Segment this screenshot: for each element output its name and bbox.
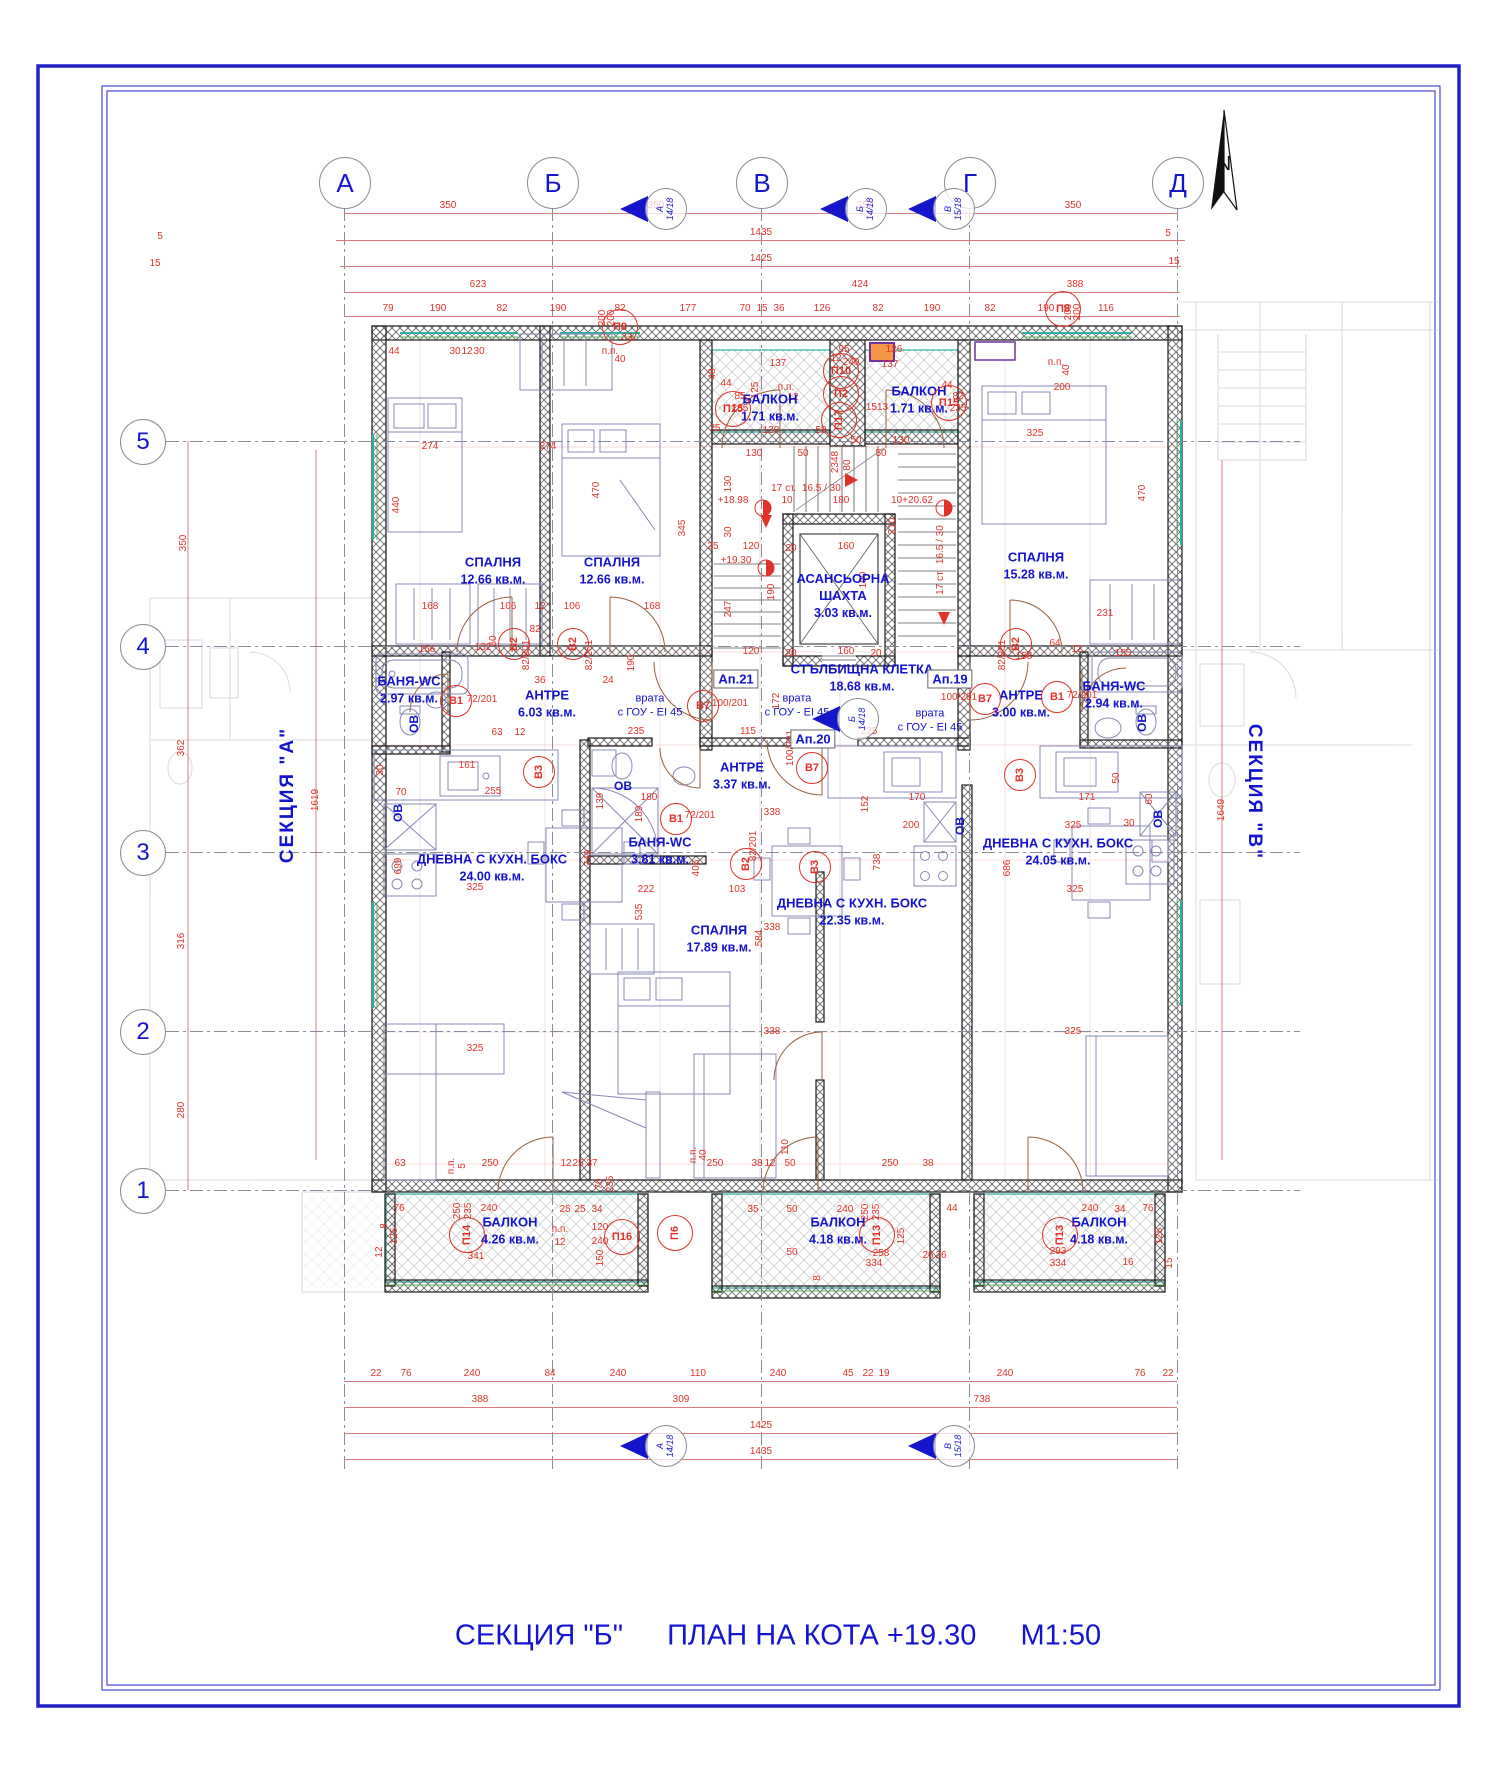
dimension-label: 240 xyxy=(464,1369,481,1379)
apartment-label: Ап.19 xyxy=(927,670,972,689)
sheet-title: СЕКЦИЯ "Б" ПЛАН НА КОТА +19.30 М1:50 xyxy=(437,1620,1119,1653)
room-name: АНТРЕ xyxy=(720,759,764,774)
dimension-label: 1435 xyxy=(750,1447,772,1457)
flag-circle: В15/18 xyxy=(933,1425,975,1467)
dimension-label: 156 xyxy=(419,645,436,655)
room-name: СПАЛНЯ xyxy=(691,922,747,937)
grid-column-line xyxy=(552,208,553,1470)
dimension-label: 274 xyxy=(422,442,439,452)
dimension-label: 189 xyxy=(635,806,645,823)
dimension-row-line xyxy=(344,1433,1177,1434)
dimension-label: 125 xyxy=(1155,1228,1165,1245)
dimension-label: 190 xyxy=(924,304,941,314)
axis-column-bubble: В xyxy=(736,157,788,209)
apartment-label: Ап.21 xyxy=(713,670,758,689)
dimension-label: 12 xyxy=(764,1159,775,1169)
dimension-label: 160 xyxy=(838,542,855,552)
room-label: СПАЛНЯ12.66 кв.м. xyxy=(461,554,526,587)
panel-circle-label: П13 xyxy=(1042,1217,1078,1253)
flag-circle: Б14/18 xyxy=(837,698,879,740)
dimension-label: 84 xyxy=(544,1369,555,1379)
room-label: АСАНСЬОРНА ШАХТА3.03 кв.м. xyxy=(783,571,903,621)
title-scale: М1:50 xyxy=(1020,1620,1101,1652)
dimension-label: 240 xyxy=(610,1369,627,1379)
grid-column-line xyxy=(969,208,970,1470)
dimension-label: 22 xyxy=(370,1369,381,1379)
room-name: ДНЕВНА С КУХН. БОКС xyxy=(983,835,1133,850)
dimension-label: 76 xyxy=(393,1204,404,1214)
dimension-label: 50 xyxy=(797,449,808,459)
panel-circle-label: П8 xyxy=(1045,291,1081,327)
dimension-label: 325 xyxy=(1067,885,1084,895)
dimension-label: 210 xyxy=(888,518,898,535)
room-label: БАЛКОН4.26 кв.м. xyxy=(481,1214,539,1247)
room-label: ДНЕВНА С КУХН. БОКС22.35 кв.м. xyxy=(777,895,927,928)
dimension-label: 70 xyxy=(595,1178,605,1189)
title-plan: ПЛАН НА КОТА +19.30 xyxy=(667,1620,976,1652)
dimension-label: 1435 xyxy=(750,228,772,238)
dimension-label: 274 xyxy=(540,442,557,452)
flag-ratio: 14/18 xyxy=(666,198,676,221)
dimension-label: 82 xyxy=(984,304,995,314)
grid-row-line xyxy=(166,441,1300,442)
dimension-row-line xyxy=(344,1407,1177,1408)
dimension-label: +18.98 xyxy=(718,496,749,506)
dimension-label: 8 xyxy=(813,1275,823,1281)
room-area: 6.03 кв.м. xyxy=(518,704,576,720)
dimension-label: 126 xyxy=(814,304,831,314)
north-label: N xyxy=(1217,153,1231,175)
dimension-label: 82 xyxy=(529,625,540,635)
room-area: 3.03 кв.м. xyxy=(783,605,903,621)
dimension-label: 584 xyxy=(755,930,765,947)
dimension-label: 44 xyxy=(720,379,731,389)
dimension-label: 235 xyxy=(606,1176,616,1193)
dimension-label: 1425 xyxy=(750,1421,772,1431)
room-name: СПАЛНЯ xyxy=(584,554,640,569)
dimension-label: 15 xyxy=(1165,1257,1175,1268)
dimension-label: 25 xyxy=(572,1159,583,1169)
room-label: БАНЯ-WC3.81 кв.м. xyxy=(629,834,692,867)
dimension-row-line xyxy=(336,240,1185,241)
flag-triangle xyxy=(820,196,848,222)
door-note: вратас ГОУ - EI 45 xyxy=(618,692,683,720)
dimension-label: 30 xyxy=(449,347,460,357)
flag-ratio: 14/18 xyxy=(858,708,868,731)
panel-circle-label: П8 xyxy=(602,309,638,345)
room-area: 3.81 кв.м. xyxy=(629,851,692,867)
valve-circle-label: В1 xyxy=(660,803,692,835)
dimension-row-line xyxy=(344,1381,1177,1382)
flag-ratio: 14/18 xyxy=(666,1435,676,1458)
room-area: 22.35 кв.м. xyxy=(777,912,927,928)
left-section-label: СЕКЦИЯ "А" xyxy=(277,727,299,863)
dimension-label: 38 xyxy=(751,1159,762,1169)
room-label: ДНЕВНА С КУХН. БОКС24.00 кв.м. xyxy=(417,851,567,884)
dimension-label: 76 xyxy=(1134,1369,1145,1379)
room-label: АНТРЕ3.37 кв.м. xyxy=(713,759,771,792)
dimension-label: 36 xyxy=(534,676,545,686)
dimension-label: 200 xyxy=(1054,383,1071,393)
dimension-label: 40 xyxy=(614,355,625,365)
dimension-label: 424 xyxy=(852,280,869,290)
dimension-label: 177 xyxy=(680,304,697,314)
panel-circle-label: П14 xyxy=(449,1217,485,1253)
dimension-label: 63 xyxy=(491,728,502,738)
dimension-label: 50 xyxy=(875,449,886,459)
dimension-label: 125 xyxy=(390,1228,400,1245)
dimension-label: 12 xyxy=(560,1159,571,1169)
panel-circle-label: П16 xyxy=(604,1219,640,1255)
flag-ratio: 15/18 xyxy=(954,198,964,221)
flag-triangle xyxy=(620,196,648,222)
dimension-label: 235 xyxy=(628,727,645,737)
panel-fixture xyxy=(975,342,1015,360)
dimension-label: 388 xyxy=(472,1395,489,1405)
dimension-label: 406 xyxy=(692,860,702,877)
dimension-label: 316 xyxy=(177,933,187,950)
valve-circle-label: В1 xyxy=(440,685,472,717)
dimension-label: 34 xyxy=(591,1205,602,1215)
ov-label: ОВ xyxy=(1135,714,1149,732)
dimension-label: 440 xyxy=(392,497,402,514)
dimension-label: 168 xyxy=(644,602,661,612)
dimension-label: 79 xyxy=(382,304,393,314)
dimension-label: 24 xyxy=(602,676,613,686)
dimension-label: 190 xyxy=(550,304,567,314)
drawing-sheet: N СЕКЦИЯ "А" СЕКЦИЯ "В" СЕКЦИЯ "Б" ПЛАН … xyxy=(0,0,1500,1774)
dimension-label: 44 xyxy=(388,347,399,357)
room-area: 4.26 кв.м. xyxy=(481,1231,539,1247)
dimension-label: 12 xyxy=(1071,645,1082,655)
dimension-label: 222 xyxy=(638,885,655,895)
dimension-label: 10+20.62 xyxy=(891,496,933,506)
dimension-label: 749 xyxy=(584,850,594,867)
room-name: БАНЯ-WC xyxy=(1083,678,1146,693)
valve-circle-label: В7 xyxy=(969,683,1001,715)
flag-ratio: 15/18 xyxy=(954,1435,964,1458)
room-name: БАЛКОН xyxy=(743,391,798,406)
dimension-label: +19.30 xyxy=(721,556,752,566)
valve-circle-label: В2 xyxy=(498,628,530,660)
dimension-label: 470 xyxy=(1138,485,1148,502)
dimension-label: 623 xyxy=(470,280,487,290)
grid-column-line xyxy=(1177,208,1178,1470)
grid-row-line xyxy=(166,646,1300,647)
valve-circle-label: В7 xyxy=(796,752,828,784)
dimension-label: 247 xyxy=(724,601,734,618)
dimension-label: 48 xyxy=(708,368,718,379)
grid-row-line xyxy=(166,1190,1300,1191)
dimension-label: 137 xyxy=(770,359,787,369)
dimension-label: 12 xyxy=(514,728,525,738)
dimension-label: 30 xyxy=(376,764,386,775)
dimension-label: 5 xyxy=(157,232,163,242)
title-section: СЕКЦИЯ "Б" xyxy=(455,1620,623,1652)
dimension-label: 362 xyxy=(177,740,187,757)
valve-circle-label: В2 xyxy=(1000,628,1032,660)
dimension-label: 240 xyxy=(770,1369,787,1379)
dimension-label: 25 xyxy=(559,1205,570,1215)
dimension-label: 12 xyxy=(461,347,472,357)
dimension-label: 325 xyxy=(1027,429,1044,439)
room-label: СПАЛНЯ17.89 кв.м. xyxy=(687,922,752,955)
dimension-label: 5 xyxy=(458,1163,468,1169)
dimension-label: 60 xyxy=(1145,793,1155,804)
dimension-label: 325 xyxy=(1065,821,1082,831)
valve-circle-label: В3 xyxy=(1004,759,1036,791)
dimension-label: 345 xyxy=(678,520,688,537)
dimension-label: 1513 xyxy=(866,403,888,413)
valve-circle-label: В1 xyxy=(1041,681,1073,713)
dimension-label: 17 ст. 16.5 / 30 xyxy=(936,525,946,595)
room-label: БАЛКОН4.18 кв.м. xyxy=(1070,1214,1128,1247)
dimension-label: 35 xyxy=(747,1205,758,1215)
section-flag: А14/18 xyxy=(620,1425,687,1467)
dimension-label: 15 xyxy=(149,259,160,269)
dimension-label: 350 xyxy=(440,201,457,211)
room-area: 2.97 кв.м. xyxy=(378,690,441,706)
dimension-label: 103 xyxy=(729,885,746,895)
dimension-label: 1619 xyxy=(311,789,321,811)
dimension-label: 50 xyxy=(1112,772,1122,783)
ov-label: ОВ xyxy=(614,779,632,793)
valve-circle-label: В2 xyxy=(557,628,589,660)
dimension-label: 70 xyxy=(739,304,750,314)
dimension-label: 325 xyxy=(1065,1027,1082,1037)
dimension-label: 22 xyxy=(1162,1369,1173,1379)
room-area: 17.89 кв.м. xyxy=(687,939,752,955)
axis-row-bubble: 1 xyxy=(120,1168,166,1214)
dimension-label: 350 xyxy=(1065,201,1082,211)
room-label: БАНЯ-WC2.94 кв.м. xyxy=(1083,678,1146,711)
room-label: ДНЕВНА С КУХН. БОКС24.05 кв.м. xyxy=(983,835,1133,868)
dimension-label: 12 xyxy=(554,1238,565,1248)
dimension-label: 126 xyxy=(886,345,903,355)
flag-triangle xyxy=(620,1433,648,1459)
dimension-label: 115 xyxy=(740,727,756,737)
dimension-label: 20 xyxy=(870,649,881,659)
dimension-label: 40 xyxy=(1062,364,1072,375)
section-flag: Б14/18 xyxy=(820,188,887,230)
room-name: СПАЛНЯ xyxy=(465,554,521,569)
dimension-label: 50 xyxy=(786,1248,797,1258)
dimension-label: 738 xyxy=(974,1395,991,1405)
valve-circle-label: В7 xyxy=(687,690,719,722)
axis-row-bubble: 4 xyxy=(120,624,166,670)
dimension-label: 25 xyxy=(707,542,718,552)
dimension-label: 45 xyxy=(842,1369,853,1379)
valve-circle-label: В3 xyxy=(799,851,831,883)
door-note: вратас ГОУ - EI 45 xyxy=(898,707,963,735)
dimension-label: 171 xyxy=(1079,793,1096,803)
flag-circle: А14/18 xyxy=(645,1425,687,1467)
dimension-label: 170 xyxy=(909,793,926,803)
dimension-label: 116 xyxy=(1098,304,1114,314)
dimension-label: 1649 xyxy=(1217,799,1227,821)
panel-circle-label: П6 xyxy=(657,1215,693,1251)
dimension-label: 25 xyxy=(709,424,720,434)
dimension-label: 168 xyxy=(422,602,439,612)
dimension-label: 82 xyxy=(496,304,507,314)
dimension-label: 22 xyxy=(862,1369,873,1379)
dimension-label: 139 xyxy=(596,793,606,810)
dimension-label: 76 xyxy=(1142,1204,1153,1214)
north-arrow: N xyxy=(1198,104,1252,224)
dimension-label: 250 xyxy=(707,1159,724,1169)
dimension-label: 338 xyxy=(764,808,781,818)
room-name: СТЪЛБИЩНА КЛЕТКА xyxy=(791,661,934,676)
dimension-label: 130 xyxy=(893,436,910,446)
panel-circle-label: П15 xyxy=(931,385,967,421)
dimension-label: 15 xyxy=(1168,257,1179,267)
room-label: СПАЛНЯ12.66 кв.м. xyxy=(580,554,645,587)
dimension-label: 250 xyxy=(482,1159,499,1169)
dimension-label: 17 ст. 16.5 / 30 xyxy=(771,484,841,494)
dimension-label: 12 xyxy=(375,1246,385,1257)
dimension-label: 240 xyxy=(481,1204,498,1214)
room-name: БАНЯ-WC xyxy=(378,673,441,688)
room-area: 3.37 кв.м. xyxy=(713,776,771,792)
dimension-label: 120 xyxy=(743,647,760,657)
dimension-label: 738 xyxy=(873,854,883,871)
dimension-label: 200 xyxy=(903,821,920,831)
dimension-label: 280 xyxy=(177,1102,187,1119)
dimension-label: 30 xyxy=(724,526,734,537)
panel-circle-label: П15 xyxy=(715,391,751,427)
panel-circle-label: П13 xyxy=(859,1217,895,1253)
dimension-label: 76 xyxy=(400,1369,411,1379)
room-area: 4.18 кв.м. xyxy=(1070,1231,1128,1247)
dimension-label: 130 xyxy=(746,449,763,459)
valve-circle-label: В2 xyxy=(730,848,762,880)
dimension-label: 334 xyxy=(866,1259,883,1269)
axis-row-bubble: 5 xyxy=(120,419,166,465)
dimension-label: 110 xyxy=(690,1369,706,1379)
dimension-label: 155 xyxy=(1115,649,1132,659)
dimension-label: 50 xyxy=(786,1205,797,1215)
dimension-label: 50 xyxy=(850,436,861,446)
room-area: 24.05 кв.м. xyxy=(983,852,1133,868)
room-area: 24.00 кв.м. xyxy=(417,868,567,884)
flag-circle: Б14/18 xyxy=(845,188,887,230)
ov-label: ОВ xyxy=(953,817,967,835)
dimension-label: 338 xyxy=(764,1027,781,1037)
dimension-label: 80 xyxy=(843,459,853,470)
panel-circle-label: П17 xyxy=(821,402,857,438)
room-name: СПАЛНЯ xyxy=(1008,549,1064,564)
dimension-label: 106 xyxy=(500,602,517,612)
dimension-label: 110 xyxy=(781,1139,791,1155)
dimension-label: 341 xyxy=(468,1252,485,1262)
room-area: 12.66 кв.м. xyxy=(580,571,645,587)
dimension-row-line xyxy=(344,1459,1177,1460)
dimension-label: 180 xyxy=(833,496,850,506)
dimension-label: 12 xyxy=(534,602,545,612)
dimension-label: 231 xyxy=(1097,609,1114,619)
section-flag: В15/18 xyxy=(908,1425,975,1467)
dimension-label: 40 xyxy=(699,1149,709,1160)
dimension-label: 82 xyxy=(872,304,883,314)
dimension-label: 30 xyxy=(473,347,484,357)
flag-triangle xyxy=(812,706,840,732)
dimension-label: 130 xyxy=(763,426,780,436)
axis-row-bubble: 3 xyxy=(120,830,166,876)
flag-ratio: 14/18 xyxy=(866,198,876,221)
flag-triangle xyxy=(908,1433,936,1459)
dimension-label: 470 xyxy=(592,482,602,499)
dimension-label: 325 xyxy=(467,1044,484,1054)
dimension-label: 152 xyxy=(861,796,871,813)
right-section-label: СЕКЦИЯ "В" xyxy=(1243,724,1265,860)
dimension-label: 255 xyxy=(485,787,502,797)
dimension-label: 63 xyxy=(394,1159,405,1169)
dimension-label: 37 xyxy=(586,1159,597,1169)
dimension-label: 36 xyxy=(773,304,784,314)
dimension-label: 2348 xyxy=(831,451,841,473)
dimension-label: 180 xyxy=(641,793,658,803)
room-label: БАНЯ-WC2.97 кв.м. xyxy=(378,673,441,706)
dimension-label: 25 xyxy=(574,1205,585,1215)
dimension-label: 10 xyxy=(781,496,792,506)
dimension-row-line xyxy=(344,213,1177,214)
dimension-label: 26 xyxy=(922,1251,933,1261)
room-name: БАНЯ-WC xyxy=(629,834,692,849)
dimension-label: 350 xyxy=(179,535,189,552)
grid-row-line xyxy=(166,1031,1300,1032)
section-flag: А14/18 xyxy=(620,188,687,230)
axis-column-bubble: Д xyxy=(1152,157,1204,209)
room-area: 2.94 кв.м. xyxy=(1083,695,1146,711)
dimension-label: п.п. xyxy=(447,1158,457,1174)
dimension-label: 137 xyxy=(882,360,899,370)
dimension-label: 106 xyxy=(564,602,581,612)
valve-circle-label: В3 xyxy=(523,756,555,788)
dimension-label: 30 xyxy=(1123,819,1134,829)
room-name: ДНЕВНА С КУХН. БОКС xyxy=(777,895,927,910)
room-label: СПАЛНЯ15.28 кв.м. xyxy=(1004,549,1069,582)
dimension-label: 38 xyxy=(922,1159,933,1169)
room-area: 3.00 кв.м. xyxy=(992,704,1050,720)
grid-column-line xyxy=(344,208,345,1470)
room-name: БАЛКОН xyxy=(811,1214,866,1229)
room-name: АСАНСЬОРНА ШАХТА xyxy=(796,571,889,603)
room-area: 15.28 кв.м. xyxy=(1004,566,1069,582)
flag-triangle xyxy=(908,196,936,222)
dimension-label: 150 xyxy=(596,1250,606,1267)
room-name: ДНЕВНА С КУХН. БОКС xyxy=(417,851,567,866)
section-flag: В15/18 xyxy=(908,188,975,230)
dimension-label: 15 xyxy=(756,304,767,314)
axis-row-bubble: 2 xyxy=(120,1009,166,1055)
dimension-label: 20 xyxy=(785,544,796,554)
flag-circle: В15/18 xyxy=(933,188,975,230)
room-name: АНТРЕ xyxy=(525,687,569,702)
dimension-label: 1425 xyxy=(750,254,772,264)
axis-column-bubble: А xyxy=(319,157,371,209)
dimension-label: 190 xyxy=(627,655,637,672)
dimension-label: 44 xyxy=(946,1204,957,1214)
dimension-row-line xyxy=(340,266,1181,267)
ov-label: ОВ xyxy=(1151,810,1165,828)
dimension-label: 160 xyxy=(838,647,855,657)
ov-label: ОВ xyxy=(407,715,421,733)
dimension-label: 535 xyxy=(635,904,645,921)
dimension-label: 161 xyxy=(459,761,476,771)
dimension-label: 20 xyxy=(785,649,796,659)
dimension-label: 64 xyxy=(1049,639,1060,649)
furniture-layer xyxy=(374,334,1182,1180)
